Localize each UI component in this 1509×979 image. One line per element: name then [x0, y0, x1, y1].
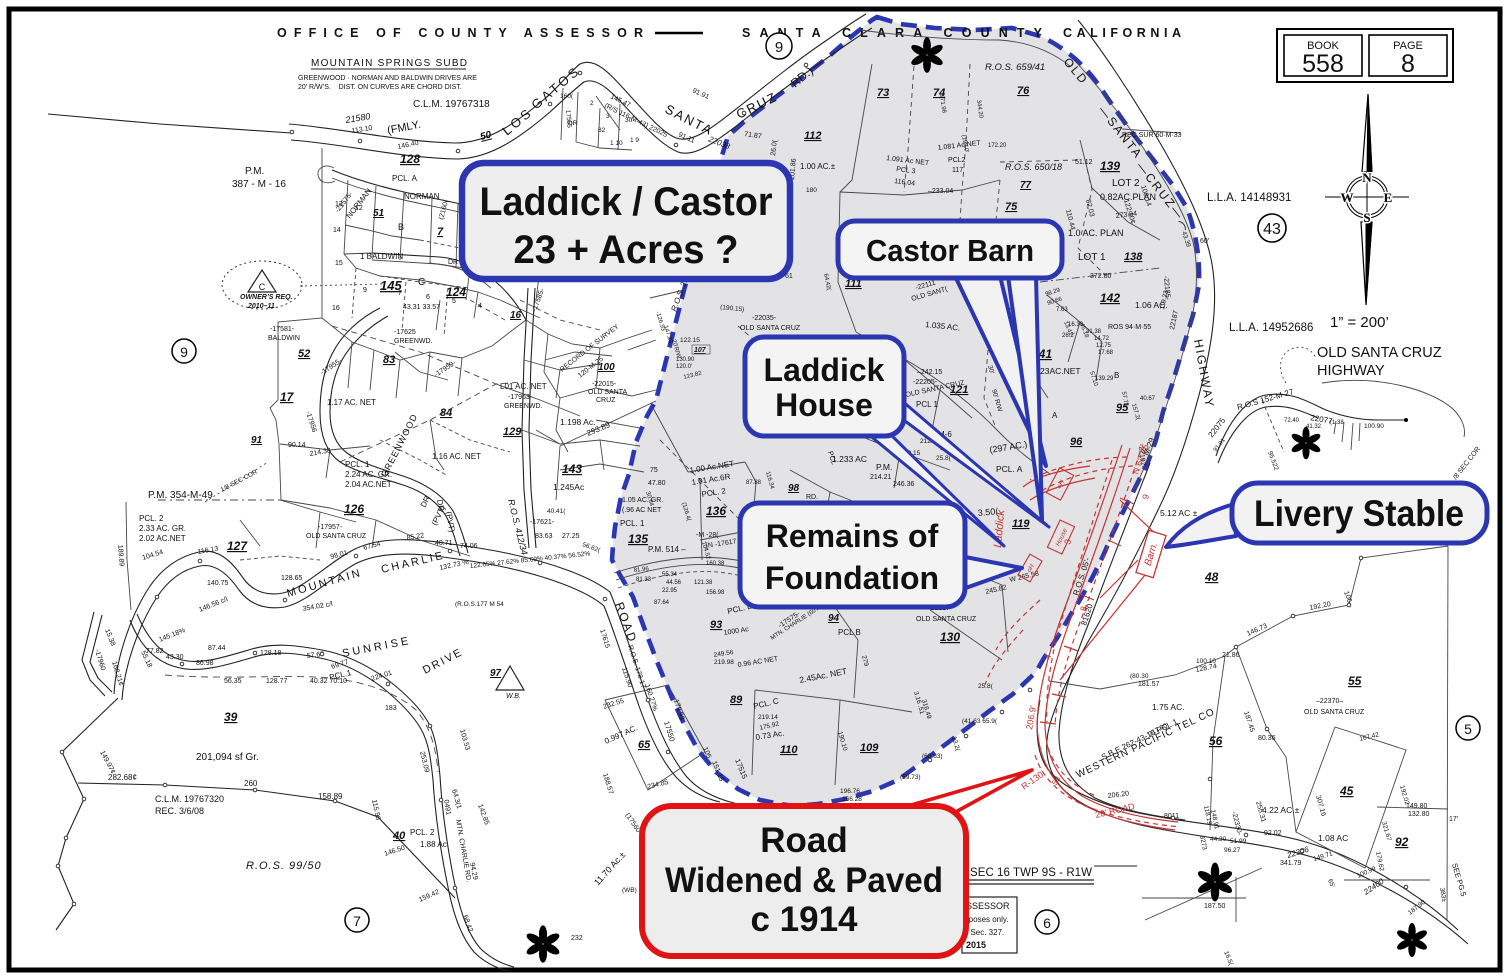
- svg-text:180: 180: [806, 187, 817, 194]
- svg-text:43.30: 43.30: [166, 654, 184, 661]
- svg-text:142: 142: [1100, 291, 1120, 305]
- svg-text:R.O.S. 99/50: R.O.S. 99/50: [246, 860, 322, 872]
- svg-text:172.20: 172.20: [988, 143, 1007, 149]
- svg-text:83: 83: [383, 354, 395, 366]
- svg-text:Laddick: Laddick: [764, 352, 885, 388]
- svg-text:124: 124: [446, 285, 466, 299]
- svg-text:166.28: 166.28: [842, 796, 862, 803]
- svg-text:183: 183: [385, 705, 397, 712]
- svg-text:(.96 AC NET: (.96 AC NET: [622, 507, 662, 514]
- svg-text:PCL B: PCL B: [838, 628, 861, 637]
- svg-text:87.64: 87.64: [654, 600, 670, 606]
- svg-text:C.L.M. 19767320: C.L.M. 19767320: [155, 794, 224, 804]
- svg-text:Remains of: Remains of: [766, 518, 939, 554]
- svg-text:(R.O.S.177 M 54: (R.O.S.177 M 54: [455, 601, 504, 608]
- svg-text:558: 558: [1302, 50, 1344, 78]
- svg-text:LOT 2: LOT 2: [1112, 178, 1140, 189]
- svg-text:2: 2: [590, 100, 594, 107]
- svg-text:128.65: 128.65: [281, 575, 303, 582]
- svg-text:2010–11: 2010–11: [247, 303, 275, 310]
- svg-text:Laddick / Castor: Laddick / Castor: [480, 180, 773, 224]
- svg-text:C: C: [259, 282, 266, 292]
- svg-text:110: 110: [780, 744, 798, 756]
- svg-text:129: 129: [503, 426, 522, 438]
- svg-text:90.14: 90.14: [288, 442, 306, 449]
- svg-text:156.98: 156.98: [706, 590, 725, 596]
- svg-text:REC SUR 60·M·33: REC SUR 60·M·33: [1122, 132, 1182, 139]
- svg-text:387 - M - 16: 387 - M - 16: [232, 179, 286, 190]
- svg-text:81.33: 81.33: [636, 577, 652, 583]
- svg-text:39: 39: [224, 710, 238, 724]
- svg-text:(59.73): (59.73): [900, 774, 921, 781]
- svg-text:5: 5: [452, 298, 456, 305]
- svg-text:ROS 94·M·55: ROS 94·M·55: [1108, 324, 1151, 331]
- svg-text:BALDWIN: BALDWIN: [268, 335, 300, 342]
- svg-text:OWNER’S REQ.: OWNER’S REQ.: [240, 294, 293, 301]
- svg-text:73: 73: [877, 87, 889, 99]
- svg-text:214.21: 214.21: [870, 474, 892, 481]
- svg-text:5: 5: [1464, 721, 1472, 737]
- svg-text:1.88 Ac.: 1.88 Ac.: [420, 840, 449, 849]
- svg-text:L.L.A. 14148931: L.L.A. 14148931: [1207, 192, 1291, 204]
- svg-text:P.M.: P.M.: [876, 462, 892, 472]
- svg-text:372.80: 372.80: [1090, 273, 1112, 280]
- svg-text:1 10: 1 10: [610, 140, 623, 147]
- svg-text:Livery Stable: Livery Stable: [1254, 493, 1464, 534]
- svg-text:158.89: 158.89: [318, 792, 343, 801]
- svg-text:PCL. 1: PCL. 1: [620, 519, 645, 528]
- svg-text:OLD SANTA CRUZ: OLD SANTA CRUZ: [740, 325, 801, 332]
- svg-text:Castor Barn: Castor Barn: [866, 233, 1034, 268]
- svg-text:PCL. 2: PCL. 2: [410, 828, 435, 837]
- svg-text:1 9: 1 9: [630, 137, 639, 144]
- svg-text:12.75: 12.75: [1096, 343, 1112, 349]
- svg-text:–242.15: –242.15: [917, 369, 942, 376]
- svg-text:(WB): (WB): [622, 887, 637, 894]
- svg-text:1.75 AC.: 1.75 AC.: [1152, 702, 1185, 712]
- svg-text:W.B.: W.B.: [506, 693, 521, 700]
- svg-text:DR: DR: [568, 120, 578, 127]
- svg-text:7: 7: [437, 226, 444, 238]
- svg-text:S: S: [1363, 210, 1370, 225]
- svg-text:135: 135: [628, 532, 648, 546]
- svg-text:196.76: 196.76: [840, 788, 860, 795]
- svg-text:187.50: 187.50: [1204, 903, 1226, 910]
- svg-text:40.41(: 40.41(: [547, 508, 566, 515]
- svg-text:4.22 AC.±: 4.22 AC.±: [1262, 805, 1300, 815]
- svg-text:282.68¢: 282.68¢: [108, 773, 137, 782]
- svg-text:75: 75: [1005, 201, 1018, 213]
- svg-text:-17621-: -17621-: [530, 519, 555, 526]
- svg-text:6: 6: [426, 294, 430, 301]
- svg-text:P.M. 354-M-49: P.M. 354-M-49: [148, 490, 213, 501]
- svg-text:SSESSOR: SSESSOR: [966, 901, 1010, 911]
- svg-text:52: 52: [298, 348, 310, 360]
- svg-text:(80.30: (80.30: [1130, 673, 1149, 680]
- svg-text:1.05 AC. GR.: 1.05 AC. GR.: [622, 497, 663, 504]
- svg-text:PCL 1: PCL 1: [916, 400, 938, 409]
- svg-text:CALIFORNIA: CALIFORNIA: [1063, 26, 1181, 40]
- svg-text:246.36: 246.36: [893, 481, 915, 488]
- svg-text:2.04 AC.NET: 2.04 AC.NET: [345, 480, 392, 489]
- svg-text:80.36: 80.36: [1258, 735, 1276, 742]
- svg-text:W: W: [1341, 190, 1354, 205]
- svg-text:136: 136: [706, 504, 726, 518]
- svg-text:1” = 200’: 1” = 200’: [1330, 314, 1389, 331]
- svg-text:-17957-: -17957-: [318, 524, 343, 531]
- svg-text:P.M.: P.M.: [245, 166, 264, 177]
- svg-text:100.90: 100.90: [1364, 423, 1384, 430]
- svg-text:84: 84: [440, 407, 452, 419]
- svg-text:55.34: 55.34: [662, 572, 678, 578]
- svg-text:139: 139: [1100, 159, 1120, 173]
- svg-text:OLD SANTA: OLD SANTA: [588, 389, 627, 396]
- svg-text:92: 92: [1395, 835, 1409, 849]
- svg-text:1.245Ac: 1.245Ac: [553, 482, 585, 492]
- svg-text:C.L.M. 19767318: C.L.M. 19767318: [413, 99, 490, 110]
- svg-text:SEC 16 TWP 9S - R1W: SEC 16 TWP 9S - R1W: [970, 867, 1092, 879]
- svg-text:rposes only.: rposes only.: [966, 915, 1009, 924]
- svg-text:51: 51: [373, 208, 385, 219]
- svg-text:16: 16: [510, 310, 522, 321]
- svg-text:27.25: 27.25: [562, 533, 580, 540]
- svg-text:55: 55: [1348, 674, 1362, 688]
- svg-text:40.32 70.10: 40.32 70.10: [310, 678, 347, 685]
- svg-text:76: 76: [1017, 85, 1030, 97]
- svg-text:65: 65: [638, 739, 651, 751]
- svg-text:R.O.S. 650/18: R.O.S. 650/18: [1005, 162, 1062, 172]
- svg-text:House: House: [775, 387, 873, 423]
- svg-text:56.35: 56.35: [224, 678, 242, 685]
- svg-text:17′: 17′: [1449, 816, 1459, 823]
- svg-text:31.38: 31.38: [1086, 329, 1102, 335]
- svg-text:1.198 Ac.: 1.198 Ac.: [560, 417, 595, 427]
- svg-text:17.68: 17.68: [1098, 350, 1114, 356]
- svg-text:15: 15: [335, 260, 343, 267]
- svg-text:PCL. 1: PCL. 1: [345, 460, 370, 469]
- svg-text:160.38: 160.38: [706, 561, 725, 567]
- svg-text:86.98: 86.98: [196, 660, 214, 667]
- svg-text:60′: 60′: [1200, 238, 1210, 245]
- svg-text:51.12: 51.12: [1075, 159, 1093, 166]
- svg-text:121: 121: [950, 384, 968, 396]
- svg-text:A: A: [1052, 411, 1058, 420]
- svg-text:3: 3: [606, 113, 610, 120]
- svg-text:16: 16: [332, 305, 340, 312]
- svg-text:44.56: 44.56: [666, 580, 682, 586]
- svg-text:E: E: [1384, 190, 1393, 205]
- svg-text:117: 117: [952, 167, 963, 174]
- svg-text:22.95: 22.95: [662, 588, 678, 594]
- svg-text:–233.04: –233.04: [928, 188, 953, 195]
- svg-text:-17581-: -17581-: [270, 326, 295, 333]
- svg-text:L.L.A. 14952686: L.L.A. 14952686: [1229, 322, 1313, 334]
- svg-text:40.71: 40.71: [435, 540, 453, 547]
- svg-text:77: 77: [1020, 180, 1032, 191]
- svg-text:GREENWOOD · NORMAN AND BALDW: GREENWOOD · NORMAN AND BALDWIN DRIVES AR…: [298, 75, 477, 82]
- svg-text:6: 6: [1043, 915, 1051, 931]
- svg-text:1 BALDWIN: 1 BALDWIN: [360, 252, 403, 261]
- svg-text:1.00 AC.±: 1.00 AC.±: [800, 162, 836, 171]
- svg-text:127: 127: [227, 539, 248, 553]
- svg-text:47.80: 47.80: [648, 480, 666, 487]
- svg-text:23AC.NET: 23AC.NET: [1040, 366, 1081, 376]
- svg-text:43: 43: [1263, 221, 1281, 238]
- svg-text:R.O.S. 659/41: R.O.S. 659/41: [985, 62, 1045, 73]
- svg-text:B: B: [1114, 371, 1119, 380]
- svg-text:2015: 2015: [966, 940, 986, 950]
- svg-text:48: 48: [1204, 570, 1219, 584]
- svg-text:94: 94: [828, 613, 840, 624]
- svg-text:26.2′: 26.2′: [1062, 333, 1076, 339]
- svg-text:17: 17: [280, 390, 295, 404]
- svg-text:43.31 33.57: 43.31 33.57: [403, 304, 440, 311]
- svg-text:72.40: 72.40: [1284, 418, 1300, 424]
- svg-text:89: 89: [730, 694, 743, 706]
- svg-text:98: 98: [788, 483, 800, 494]
- svg-text:219.14: 219.14: [758, 714, 778, 721]
- svg-text:14: 14: [333, 227, 341, 234]
- svg-text:107: 107: [694, 347, 707, 354]
- svg-text:4: 4: [478, 303, 482, 310]
- svg-text:RD.: RD.: [806, 494, 818, 501]
- svg-text:(41.63 65.9(: (41.63 65.9(: [962, 718, 998, 725]
- svg-text:132.80: 132.80: [1408, 811, 1430, 818]
- svg-text:128: 128: [400, 152, 420, 166]
- svg-text:OLD SANTA CRUZ: OLD SANTA CRUZ: [916, 616, 977, 623]
- svg-text:20’ R/W’S. DIST. ON CURVES: 20’ R/W’S. DIST. ON CURVES ARE CHORD DIS…: [298, 84, 462, 91]
- svg-text:12: 12: [355, 205, 363, 212]
- svg-text:Road: Road: [760, 821, 848, 860]
- svg-text:5.12 AC ±: 5.12 AC ±: [1160, 508, 1198, 518]
- svg-text:30: 30: [625, 117, 633, 124]
- svg-text:45: 45: [1339, 784, 1354, 798]
- svg-text:–22370–: –22370–: [1316, 698, 1343, 705]
- svg-text:(1.38: (1.38: [1330, 420, 1344, 426]
- svg-text:40.67: 40.67: [1140, 396, 1156, 402]
- svg-text:DR: DR: [448, 259, 458, 266]
- svg-text:P.M. 514 –: P.M. 514 –: [648, 545, 686, 554]
- svg-text:13: 13: [335, 201, 343, 208]
- svg-text:PCL. A: PCL. A: [996, 464, 1023, 474]
- svg-text:8: 8: [1401, 50, 1415, 78]
- svg-text:140.75: 140.75: [207, 580, 229, 587]
- svg-text:2.33 AC. GR.: 2.33 AC. GR.: [139, 524, 186, 533]
- svg-text:92.02: 92.02: [1264, 830, 1282, 837]
- svg-text:112: 112: [804, 130, 822, 142]
- svg-text:201,094 sf Gr.: 201,094 sf Gr.: [196, 752, 259, 763]
- svg-text:7.63: 7.63: [1056, 307, 1068, 313]
- svg-text:REC. 3/6/08: REC. 3/6/08: [155, 806, 204, 816]
- svg-text:109: 109: [860, 742, 879, 754]
- svg-text:75: 75: [650, 467, 658, 474]
- svg-text:PCL2: PCL2: [948, 157, 966, 164]
- svg-text:7: 7: [398, 290, 402, 297]
- svg-text:GREENWD.: GREENWD.: [504, 403, 543, 410]
- svg-text:CRUZ: CRUZ: [596, 397, 616, 404]
- svg-text:232: 232: [571, 935, 583, 942]
- svg-text:-M -28(: -M -28(: [696, 532, 719, 539]
- svg-text:PCL. 2: PCL. 2: [139, 514, 164, 523]
- svg-text:74.06: 74.06: [460, 543, 478, 550]
- svg-text:122.15: 122.15: [680, 337, 700, 344]
- svg-text:. Sec. 327.: . Sec. 327.: [966, 928, 1004, 937]
- svg-text:GREENWD.: GREENWD.: [394, 338, 433, 345]
- svg-text:40: 40: [392, 830, 406, 842]
- svg-text:Foundation: Foundation: [765, 560, 939, 596]
- svg-text:OLD SANTA CRUZ: OLD SANTA CRUZ: [1317, 345, 1442, 361]
- svg-text:HIGHWAY: HIGHWAY: [1317, 363, 1385, 379]
- svg-text:c 1914: c 1914: [750, 900, 858, 939]
- svg-text:83.63: 83.63: [535, 533, 553, 540]
- svg-text:91: 91: [251, 435, 263, 446]
- svg-text:Widened & Paved: Widened & Paved: [665, 861, 943, 900]
- svg-text:87.88: 87.88: [746, 480, 762, 486]
- svg-text:7: 7: [353, 913, 361, 929]
- svg-text:149.80: 149.80: [1406, 803, 1428, 810]
- svg-text:-22035-: -22035-: [752, 315, 777, 322]
- svg-text:9: 9: [775, 39, 783, 56]
- svg-text:9: 9: [363, 287, 367, 294]
- svg-text:1.16 AC. NET: 1.16 AC. NET: [432, 452, 481, 461]
- svg-text:-22015-: -22015-: [592, 381, 617, 388]
- svg-text:87.44: 87.44: [208, 645, 226, 652]
- svg-text:1.0 AC. PLAN: 1.0 AC. PLAN: [1068, 228, 1124, 238]
- svg-text:138: 138: [1124, 251, 1143, 263]
- svg-text:181.57: 181.57: [1138, 681, 1160, 688]
- svg-text:119: 119: [1012, 518, 1030, 530]
- svg-text:OLD SANTA CRUZ: OLD SANTA CRUZ: [1304, 709, 1365, 716]
- svg-text:C: C: [418, 277, 425, 288]
- svg-text:121.38: 121.38: [694, 580, 713, 586]
- svg-text:L01 AC. NET: L01 AC. NET: [500, 382, 547, 391]
- svg-text:14.72: 14.72: [1094, 336, 1110, 342]
- svg-text:128.77: 128.77: [266, 678, 288, 685]
- svg-text:23 + Acres ?: 23 + Acres ?: [514, 228, 739, 272]
- svg-text:1.08 AC: 1.08 AC: [1318, 833, 1348, 843]
- svg-text:143: 143: [562, 462, 582, 476]
- svg-text:51.99: 51.99: [1230, 838, 1247, 845]
- svg-text:93: 93: [710, 619, 722, 631]
- svg-text:9: 9: [180, 344, 188, 360]
- svg-text:77.82: 77.82: [146, 648, 164, 655]
- svg-text:2.02 AC.NET: 2.02 AC.NET: [139, 534, 186, 543]
- svg-text:21.86: 21.86: [1222, 652, 1240, 659]
- svg-text:(60.83): (60.83): [922, 753, 943, 760]
- svg-text:1.17 AC. NET: 1.17 AC. NET: [327, 398, 376, 407]
- svg-text:341.79: 341.79: [1280, 860, 1302, 867]
- svg-text:N: N: [1362, 170, 1372, 185]
- svg-text:-17963-: -17963-: [508, 394, 533, 401]
- svg-text:130: 130: [940, 630, 960, 644]
- svg-text:NORMAN: NORMAN: [404, 192, 440, 201]
- svg-text:25.8(: 25.8(: [936, 455, 952, 462]
- svg-text:126: 126: [344, 502, 364, 516]
- svg-text:44.30: 44.30: [1210, 836, 1227, 843]
- svg-text:96.27: 96.27: [1224, 847, 1241, 854]
- svg-text:260: 260: [244, 779, 258, 788]
- svg-text:PCL. A: PCL. A: [392, 174, 418, 183]
- svg-text:97: 97: [490, 668, 502, 679]
- svg-text:160(: 160(: [560, 93, 574, 100]
- svg-text:LOT 1: LOT 1: [1078, 252, 1106, 263]
- svg-text:128.18: 128.18: [260, 650, 282, 657]
- svg-text:-17625: -17625: [394, 329, 416, 336]
- svg-text:120.0′: 120.0′: [676, 364, 693, 370]
- svg-text:82: 82: [598, 127, 606, 134]
- svg-text:56: 56: [1209, 734, 1223, 748]
- svg-text:219.98: 219.98: [714, 659, 734, 666]
- svg-text:B: B: [398, 222, 404, 232]
- svg-text:OLD SANTA CRUZ: OLD SANTA CRUZ: [306, 533, 367, 540]
- svg-text:96: 96: [1070, 436, 1083, 448]
- svg-text:MOUNTAIN SPRINGS SUBD: MOUNTAIN SPRINGS SUBD: [311, 58, 467, 69]
